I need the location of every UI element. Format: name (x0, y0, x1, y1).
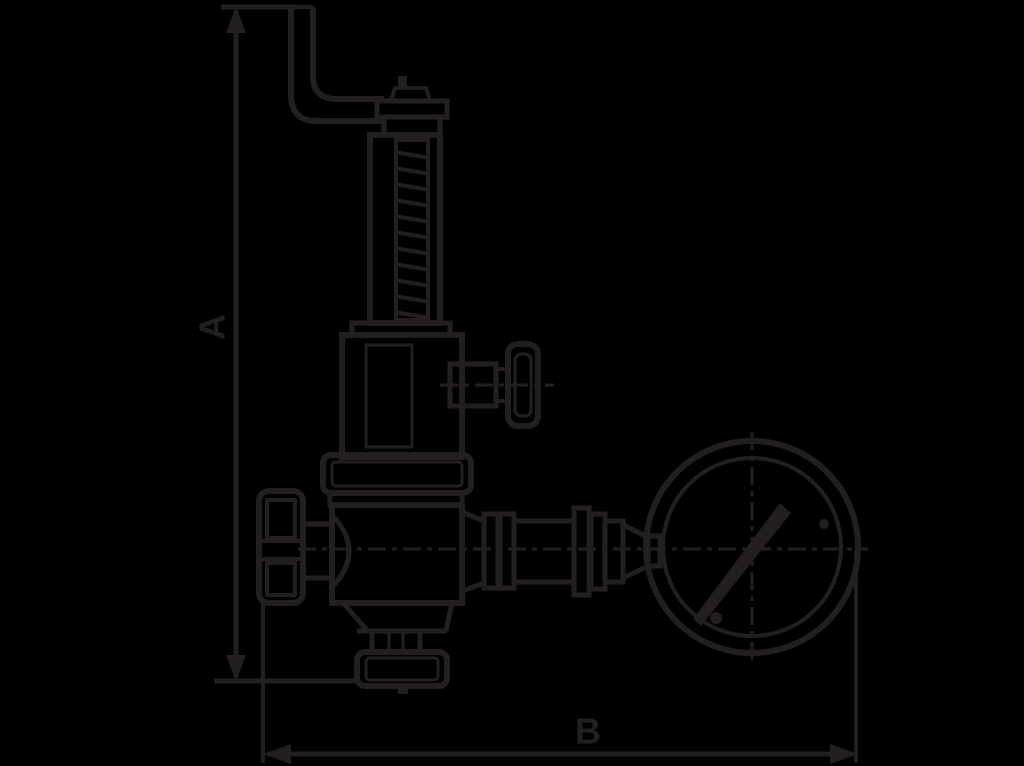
dimension-b-label: B (575, 711, 601, 752)
pressure-gauge (646, 432, 858, 660)
outlet-flange (440, 344, 554, 426)
valve-body (302, 493, 462, 652)
dimension-b-arrow-right-icon (830, 744, 858, 764)
gauge-needle (693, 503, 791, 626)
technical-drawing: A B (0, 0, 1024, 766)
safety-valve-drawing (259, 7, 868, 694)
bottom-flange (357, 652, 447, 694)
test-lever (291, 7, 384, 121)
dimension-a-arrow-up-icon (226, 6, 246, 33)
gauge-dot-left (710, 612, 722, 624)
valve-diagram-canvas: A B (0, 0, 1024, 766)
spindle-cap (377, 76, 447, 135)
dimension-b-arrow-left-icon (263, 744, 291, 764)
dimension-a-arrow-down-icon (226, 655, 246, 682)
union-nut (323, 455, 471, 493)
spring-coils (394, 152, 430, 318)
spring-column (370, 135, 440, 323)
dimension-a-label: A (192, 314, 233, 340)
bonnet (342, 323, 462, 457)
handwheel (259, 491, 303, 603)
gauge-dot-right (819, 519, 829, 529)
